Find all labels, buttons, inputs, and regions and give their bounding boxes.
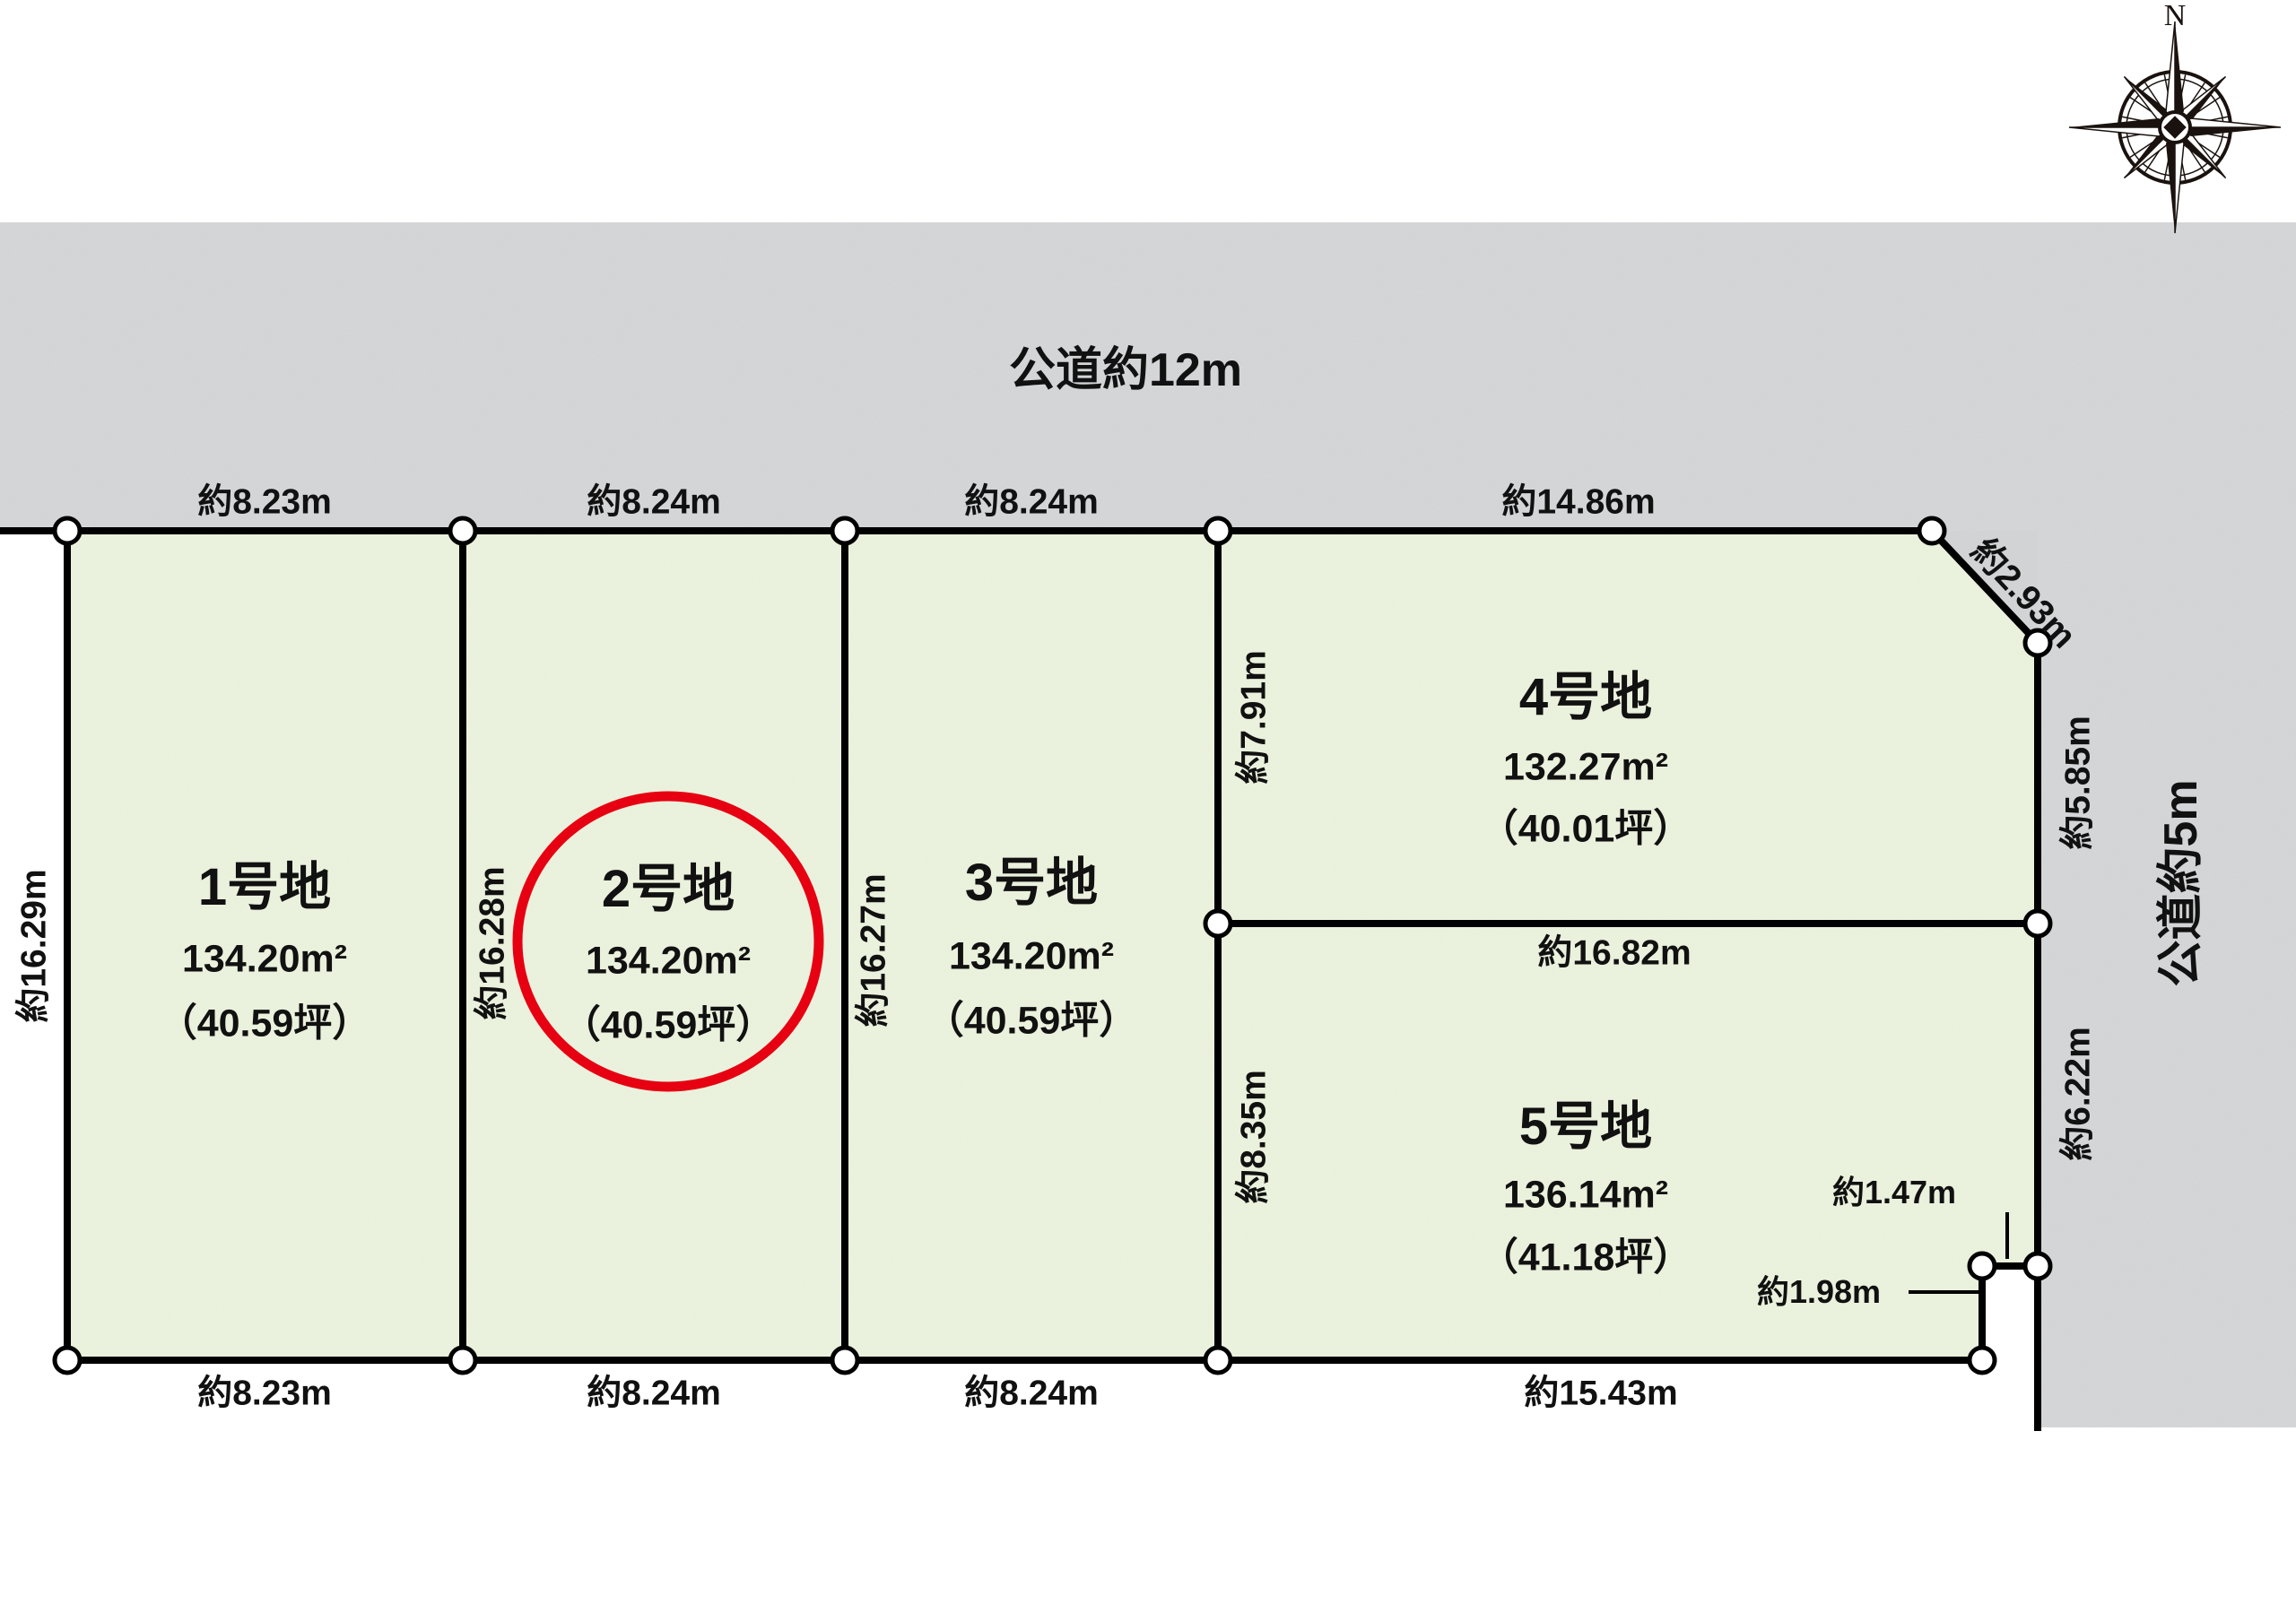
dim-plot2-left: 約16.28m [475,866,510,1019]
plot3-area-m2: 134.20m² [949,938,1114,976]
plot1-area-tsubo: （40.59坪） [159,1005,371,1044]
dim-top-plot4: 約14.86m [1501,485,1655,520]
plot4-area-tsubo: （40.01坪） [1480,811,1692,849]
plan-drawing [0,0,2296,1622]
compass-rose: N [2049,2,2296,235]
dim-notch-depth: 約1.98m [1757,1276,1881,1308]
compass-north-label: N [2164,2,2187,32]
paper-grain [0,222,2296,1427]
plot5-area-m2: 136.14m² [1503,1176,1668,1215]
plot5-name: 5号地 [1519,1101,1652,1153]
dim-top-plot1: 約8.23m [197,485,332,520]
dim-right-lower: 約6.22m [2061,1027,2096,1161]
plot1-name: 1号地 [198,862,331,914]
plot4-area-m2: 132.27m² [1503,749,1668,787]
dim-top-plot2: 約8.24m [587,485,721,520]
dim-right-upper: 約5.85m [2061,716,2096,850]
plot1-area-m2: 134.20m² [182,941,347,979]
plot3-name: 3号地 [965,857,1098,909]
top-road-label: 公道約12m [1009,347,1242,394]
dim-bottom-plot1: 約8.23m [197,1376,332,1411]
dim-plot5-left: 約8.35m [1237,1070,1272,1204]
dim-notch-width: 約1.47m [1832,1176,1956,1209]
plot5-area-tsubo: （41.18坪） [1480,1239,1692,1278]
plot2-area-tsubo: （40.59坪） [562,1007,775,1045]
plot2-area-m2: 134.20m² [586,942,751,981]
dim-bottom-plot3: 約8.24m [964,1376,1099,1411]
dim-bottom-plot5: 約15.43m [1524,1376,1677,1411]
plot3-area-tsubo: （40.59坪） [926,1002,1138,1041]
dim-between-4-5: 約16.82m [1537,936,1691,971]
dim-plot4-left: 約7.91m [1237,650,1272,785]
dim-plot3-left: 約16.27m [857,873,891,1027]
land-plot-plan: N 公道約12m 公道約5m 約8.23m 約8.24m 約8.24m 約14.… [0,0,2296,1622]
plot2-name: 2号地 [602,863,735,915]
plot4-name: 4号地 [1519,672,1652,724]
dim-left-outer: 約16.29m [17,869,52,1022]
dim-top-plot3: 約8.24m [964,485,1099,520]
dim-bottom-plot2: 約8.24m [587,1376,721,1411]
right-road-label: 公道約5m [2158,779,2205,986]
